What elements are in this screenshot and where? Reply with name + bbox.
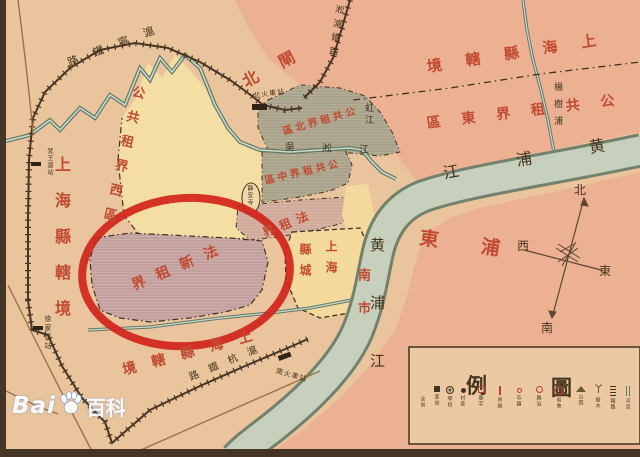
legend-item: 市鎮 — [512, 386, 526, 407]
railway-icon — [610, 386, 616, 396]
north-station-symbol — [252, 104, 267, 110]
legend-item-label: 鐵路 — [610, 398, 617, 410]
legend-item-label: 山岡 — [578, 394, 585, 406]
label-hongjiang-creek: 虹江 — [363, 103, 372, 127]
village-dot-icon — [461, 388, 466, 393]
legend-item-label: 廟宇 — [478, 395, 485, 407]
river-icon — [626, 386, 630, 396]
label-county-city-col2: 縣城 — [299, 243, 311, 285]
hill-icon — [576, 386, 586, 392]
legend-item: 鐵路 — [606, 386, 620, 410]
legend-item-label: 學校 — [447, 396, 454, 408]
historical-shanghai-map: 上海縣轄境 境轄縣海上 區東界租共公 北閘 公共租界西區 界租新法 界租法 區中… — [0, 0, 640, 457]
legend-item-label: 界線 — [497, 397, 504, 409]
legend-item: 車站 — [430, 386, 444, 406]
legend-item: 村莊 — [456, 386, 470, 407]
tree-icon: 丫 — [594, 386, 602, 395]
double-circle-icon — [446, 386, 454, 394]
legend-item-label: 縣治 — [536, 395, 543, 407]
legend-item-label: 全省 — [420, 396, 427, 408]
xujiahui-station-symbol — [33, 326, 43, 330]
legend-item-label: 村莊 — [460, 395, 467, 407]
legend-item-label: 省會 — [556, 397, 563, 409]
small-red-circle-icon — [517, 388, 522, 393]
legend-item: 縣治 — [532, 386, 546, 407]
frame-left — [0, 0, 6, 457]
legend-item: 學校 — [443, 386, 457, 408]
legend-item: 河流 — [621, 386, 635, 410]
red-circle-icon — [536, 386, 543, 393]
compass-south-label: 南 — [541, 322, 553, 334]
legend-item-label: 車站 — [434, 394, 441, 406]
legend-item: 全省 — [416, 386, 430, 408]
legend-item: 山岡 — [574, 386, 588, 406]
compass-north-label: 北 — [574, 184, 586, 196]
station-icon — [434, 386, 440, 392]
label-xujiahui-station: 徐家匯站 — [44, 315, 51, 351]
red-square-icon — [478, 386, 485, 393]
baidu-paw-icon — [58, 391, 84, 415]
label-huangpu-river-south: 黄浦江 — [369, 237, 384, 411]
legend-item: 丫樹木 — [591, 386, 605, 409]
label-shanghai-county-west: 上海縣轄境 — [53, 156, 69, 336]
red-bar-icon — [499, 386, 501, 395]
legend-item: 界線 — [493, 386, 507, 409]
legend-item-label: 市鎮 — [516, 395, 523, 407]
label-county-city-col1: 上海 — [325, 240, 337, 282]
label-jingan-temple: 靜安寺 — [246, 185, 252, 206]
frame-bottom — [0, 449, 640, 457]
label-yangshupu: 楊樹浦 — [552, 82, 561, 133]
compass-east-label: 東 — [599, 265, 611, 277]
fanwangdu-station-symbol — [31, 162, 41, 166]
blank-icon — [420, 386, 426, 394]
watermark-brand-text: Bai — [12, 393, 56, 419]
watermark-suffix-text: 百科 — [86, 392, 126, 421]
legend-item: 省會 — [552, 386, 566, 409]
legend-item: 廟宇 — [474, 386, 488, 407]
compass-west-label: 西 — [517, 240, 529, 252]
legend-item-label: 樹木 — [595, 397, 602, 409]
legend-item-label: 河流 — [625, 398, 632, 410]
label-fanwangdu-station: 梵王渡站 — [46, 148, 52, 176]
baidu-baike-watermark: Bai 百科 — [12, 391, 126, 421]
large-red-circle-icon — [555, 386, 564, 395]
